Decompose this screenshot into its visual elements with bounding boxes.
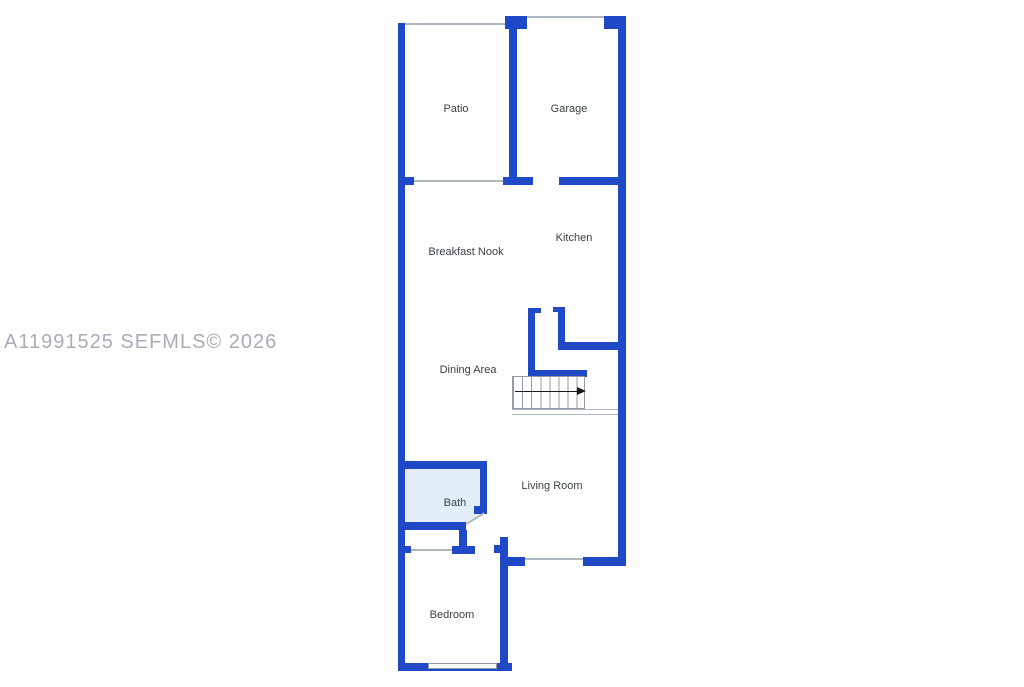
bedroom-window — [428, 663, 497, 669]
stairs-direction-arrow-icon — [577, 387, 586, 395]
stairs-bottom-line-upper — [512, 409, 618, 410]
stairs-direction-line — [515, 391, 578, 392]
staircase — [512, 376, 585, 409]
wall-bath-top — [398, 461, 487, 469]
room-label-living-room: Living Room — [482, 480, 622, 493]
wall-living-bottom-right — [583, 557, 626, 566]
wall-divider-left-stub — [398, 177, 414, 185]
wall-outer-left — [398, 23, 405, 671]
patio-opening-line — [414, 180, 503, 182]
garage-door-jamb-right — [604, 16, 626, 29]
wall-bath-bottom — [398, 522, 466, 530]
wall-kitchen-horizontal — [558, 342, 626, 350]
living-entry-opening-line — [525, 558, 583, 560]
mls-watermark: A11991525 SEFMLS© 2026 — [4, 331, 277, 354]
garage-door-line — [527, 16, 604, 18]
bath-floor-fill — [405, 469, 484, 522]
room-label-bath: Bath — [385, 497, 525, 510]
closet-jamb-right — [553, 307, 565, 312]
wall-living-bottom-left-stub — [500, 557, 525, 566]
wall-closet-right — [558, 307, 565, 345]
wall-divider-middle-segment — [503, 177, 533, 185]
patio-top-edge-line — [405, 23, 509, 25]
room-label-bedroom: Bedroom — [382, 609, 522, 622]
wall-divider-right-segment — [559, 177, 626, 185]
room-label-kitchen: Kitchen — [504, 232, 644, 245]
room-label-garage: Garage — [499, 103, 639, 116]
room-label-breakfast-nook: Breakfast Nook — [396, 246, 536, 259]
wall-patio-garage-divider — [509, 16, 517, 185]
garage-door-jamb-left — [505, 16, 527, 29]
closet-jamb-left — [528, 308, 541, 313]
bedroom-door-opening-line — [411, 549, 452, 551]
hall-jamb-foot — [452, 546, 475, 554]
bedroom-wall-flange — [494, 545, 500, 553]
floor-plan: Patio Garage Kitchen Breakfast Nook Dini… — [0, 0, 1024, 687]
room-label-dining-area: Dining Area — [398, 364, 538, 377]
stairs-bottom-line-lower — [512, 414, 618, 415]
